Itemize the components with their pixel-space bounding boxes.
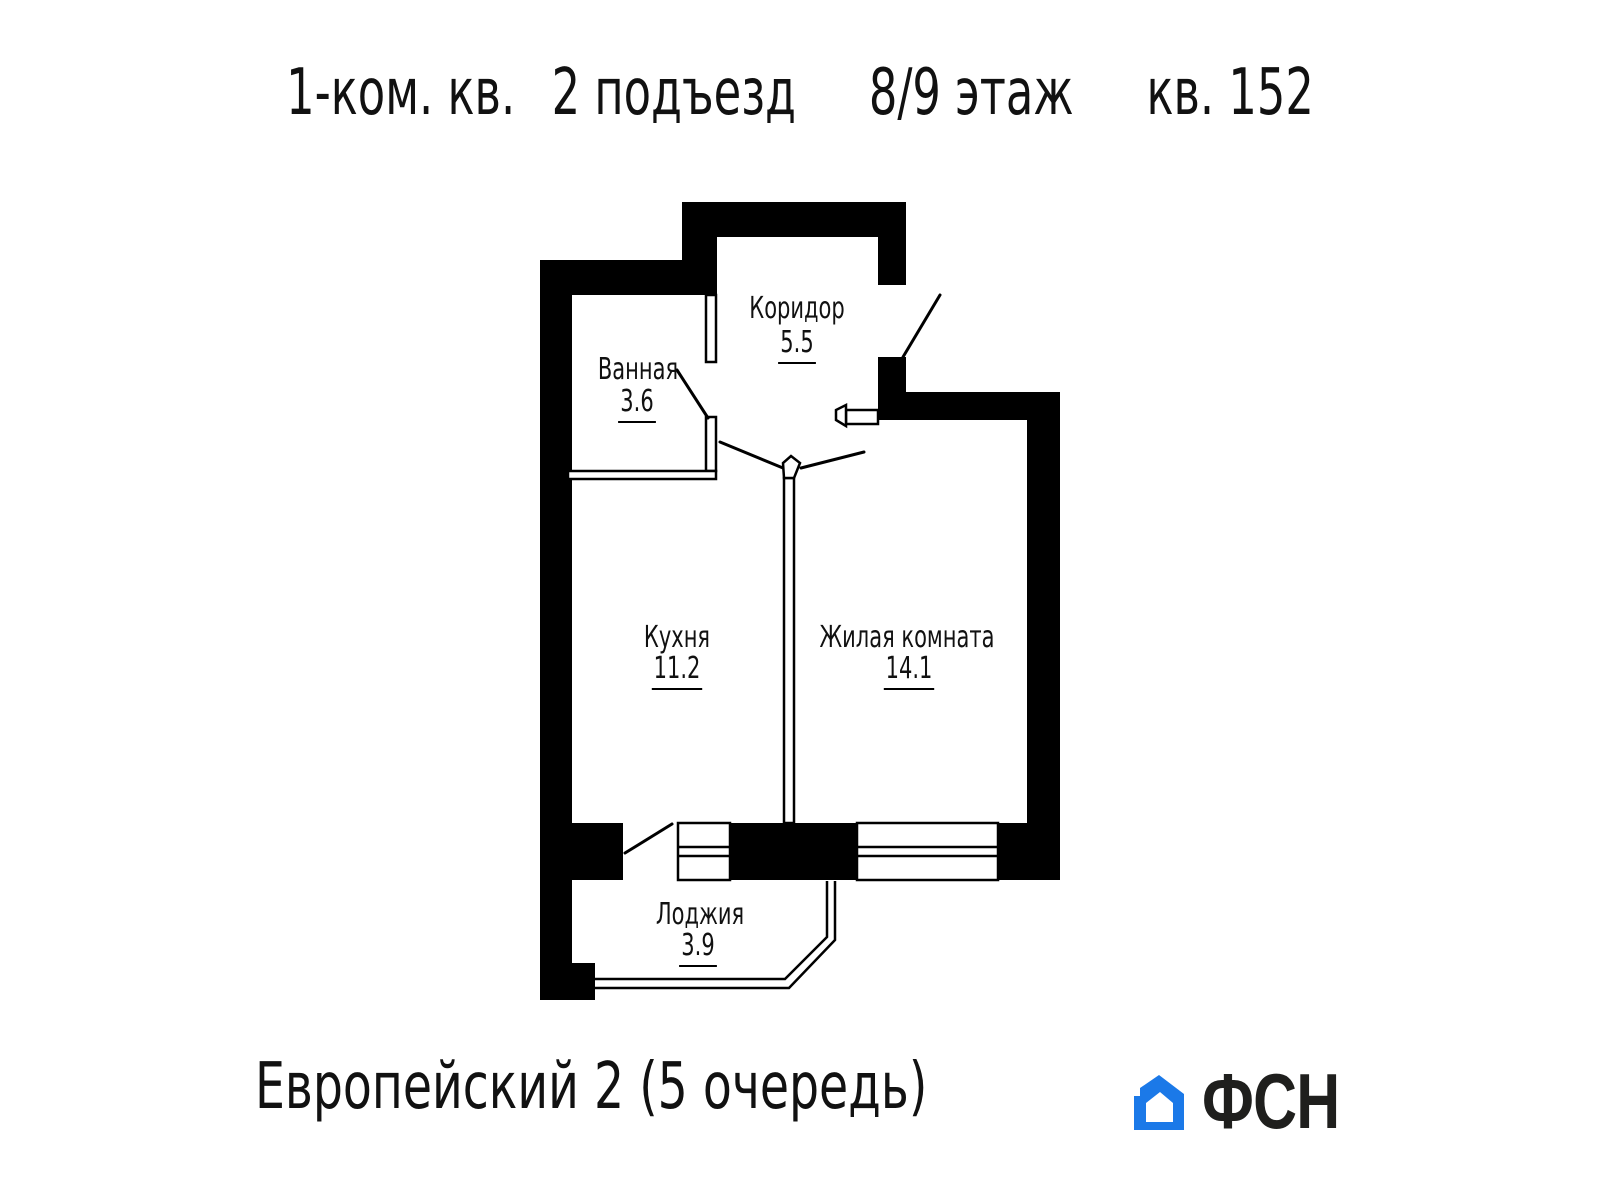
kitchen-door-leaf: [720, 442, 783, 468]
living-door-leaf: [801, 452, 864, 468]
room-area-bathroom: 3.6: [497, 387, 777, 423]
room-label-living: Жилая комната: [767, 623, 1047, 653]
living-door-opening: [846, 410, 878, 424]
house-icon: [1126, 1070, 1192, 1132]
room-label-loggia: Лоджия: [560, 900, 840, 930]
project-name: Европейский 2 (5 очередь): [255, 1054, 927, 1121]
balcony-door-leaf: [625, 824, 672, 853]
logo-text: ФСН: [1202, 1062, 1339, 1140]
room-area-loggia: 3.9: [558, 931, 838, 967]
room-label-bathroom: Ванная: [498, 355, 778, 385]
floor-plan-svg: [0, 0, 1600, 1200]
room-area-living: 14.1: [769, 654, 1049, 690]
living-door-jamb: [836, 405, 846, 426]
developer-logo: ФСН: [1126, 1068, 1378, 1134]
floor-plan: [0, 0, 1600, 1200]
partition-door-jamb: [783, 456, 800, 478]
room-label-corridor: Коридор: [657, 294, 937, 324]
